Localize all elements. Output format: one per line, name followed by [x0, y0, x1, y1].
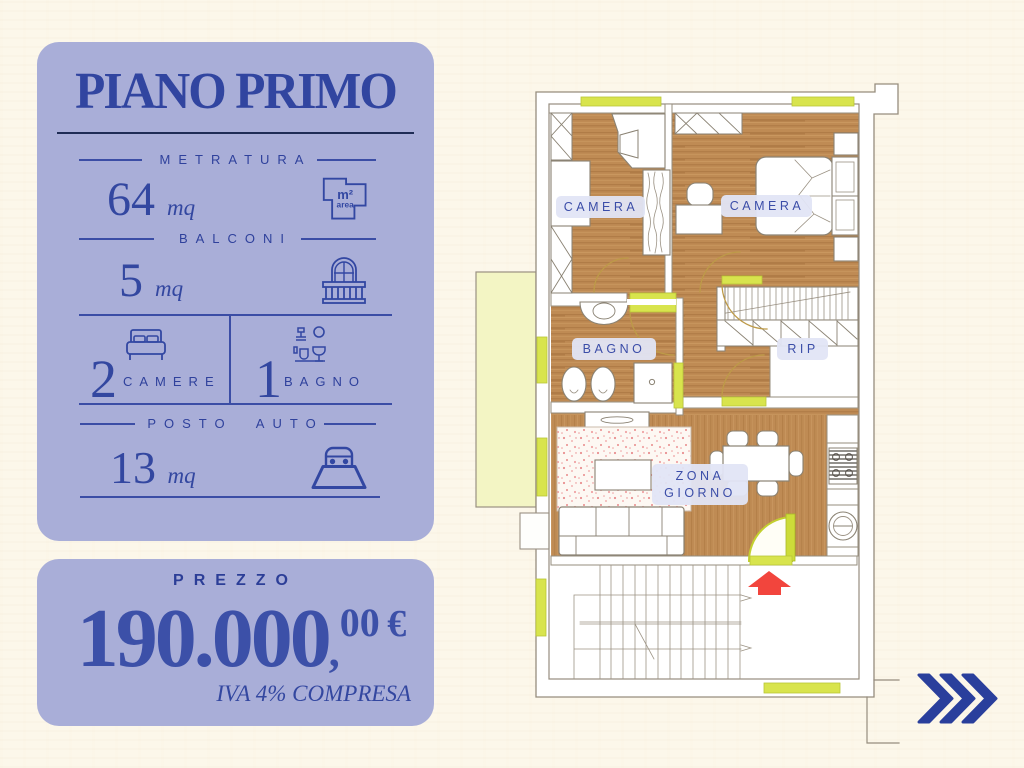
svg-text:GIORNO: GIORNO — [664, 486, 736, 500]
svg-text:BAGNO: BAGNO — [583, 342, 646, 356]
svg-text:CAMERA: CAMERA — [564, 200, 638, 214]
svg-text:CAMERA: CAMERA — [730, 199, 804, 213]
svg-text:RIP: RIP — [787, 342, 818, 356]
svg-text:ZONA: ZONA — [676, 469, 725, 483]
